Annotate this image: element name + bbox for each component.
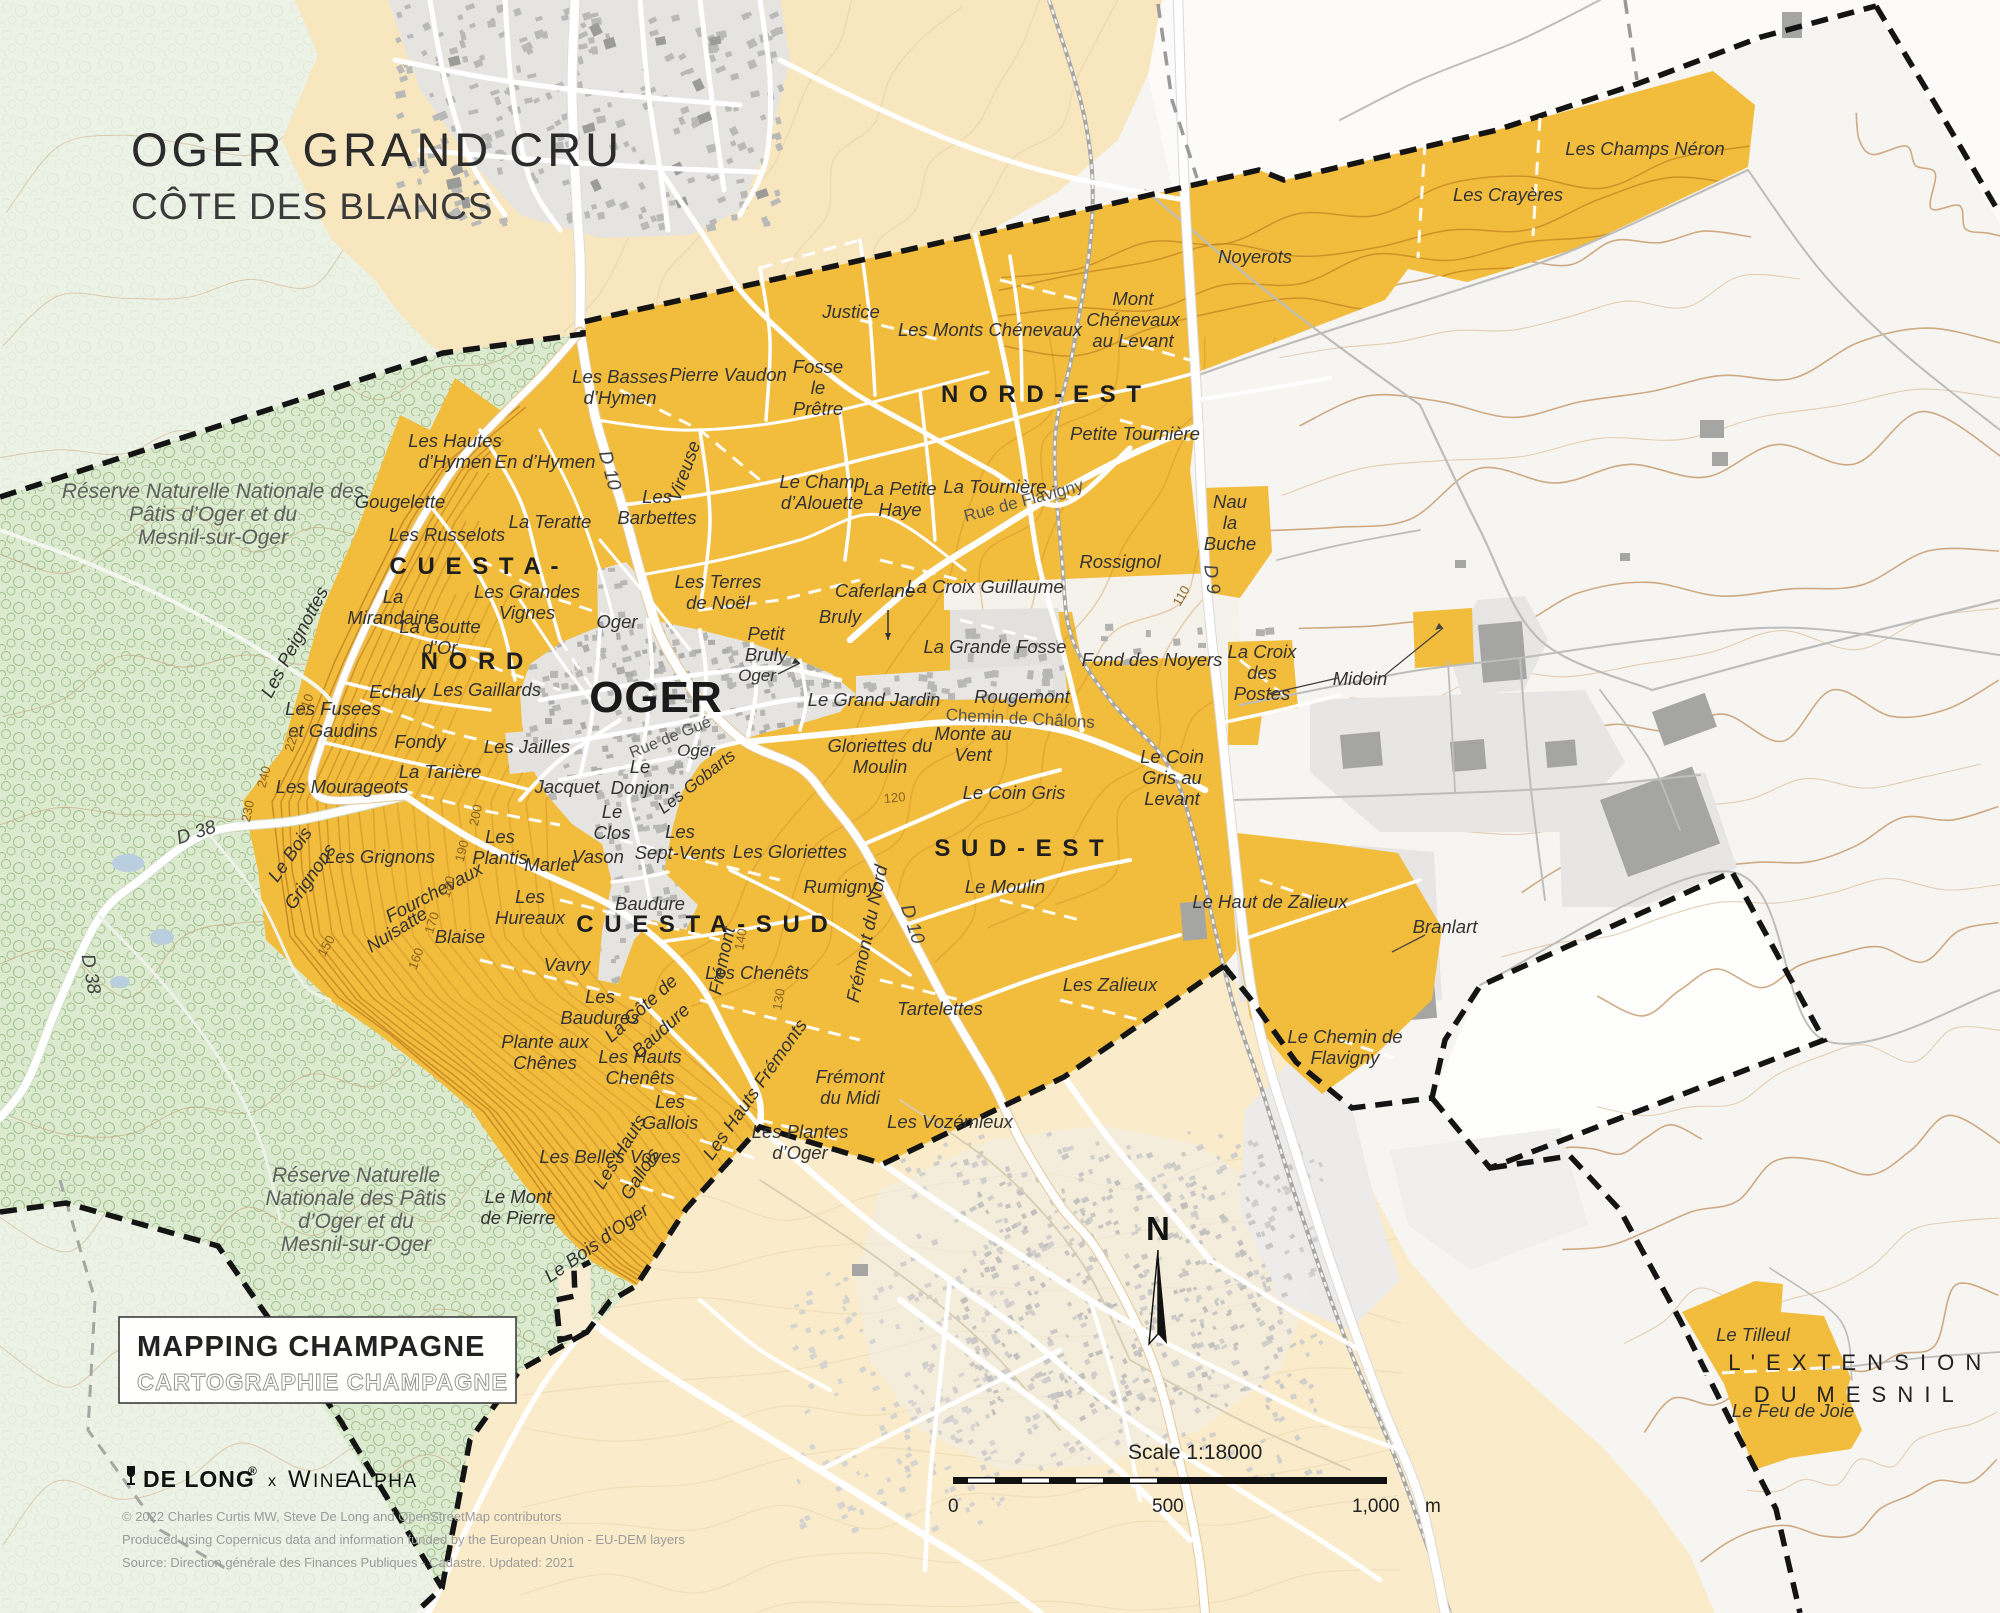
svg-text:Scale 1:18000: Scale 1:18000: [1128, 1441, 1262, 1464]
svg-text:Caferlane: Caferlane: [835, 580, 915, 601]
svg-text:Source: Direction générale des: Source: Direction générale des Finances …: [122, 1555, 574, 1570]
svg-text:Les Russelots: Les Russelots: [389, 524, 505, 545]
svg-text:Vent: Vent: [954, 744, 992, 765]
svg-text:Fondy: Fondy: [394, 731, 447, 752]
svg-text:La Tarière: La Tarière: [399, 761, 482, 782]
svg-text:Les Zalieux: Les Zalieux: [1063, 974, 1158, 995]
svg-text:Midoin: Midoin: [1333, 668, 1388, 689]
svg-text:120: 120: [883, 789, 906, 806]
svg-text:de Pierre: de Pierre: [480, 1207, 555, 1228]
svg-text:La Grande Fosse: La Grande Fosse: [924, 636, 1067, 657]
svg-text:Le Coin: Le Coin: [1140, 746, 1204, 767]
svg-text:La Petite: La Petite: [863, 478, 936, 499]
svg-text:Les Jailles: Les Jailles: [484, 736, 570, 757]
svg-text:Chénevaux: Chénevaux: [1086, 309, 1180, 330]
svg-text:N: N: [1146, 1210, 1170, 1247]
svg-text:d’Oger et du: d’Oger et du: [298, 1210, 414, 1233]
svg-text:Réserve Naturelle: Réserve Naturelle: [272, 1164, 440, 1187]
svg-text:C U E S T A -: C U E S T A -: [390, 553, 561, 580]
svg-text:Le: Le: [630, 756, 651, 777]
svg-text:Noyerots: Noyerots: [1218, 246, 1292, 267]
svg-text:et Gaudins: et Gaudins: [288, 720, 377, 741]
svg-text:1,000: 1,000: [1352, 1496, 1400, 1517]
svg-text:L ' E X T E N S I O N: L ' E X T E N S I O N: [1728, 1350, 1984, 1375]
svg-text:Le Grand Jardin: Le Grand Jardin: [808, 689, 941, 710]
svg-text:Produced using Copernicus data: Produced using Copernicus data and infor…: [122, 1532, 685, 1547]
svg-text:Sept-Vents: Sept-Vents: [635, 842, 726, 863]
svg-text:Bruly: Bruly: [819, 606, 863, 627]
svg-text:Marlet: Marlet: [524, 854, 576, 875]
svg-text:Le Moulin: Le Moulin: [965, 876, 1045, 897]
svg-text:Le Haut de Zalieux: Le Haut de Zalieux: [1192, 891, 1348, 912]
svg-text:Les Vozémieux: Les Vozémieux: [887, 1111, 1014, 1132]
svg-text:CARTOGRAPHIE CHAMPAGNE: CARTOGRAPHIE CHAMPAGNE: [137, 1369, 508, 1395]
svg-text:La: La: [383, 586, 404, 607]
svg-text:Plante aux: Plante aux: [501, 1031, 589, 1052]
svg-text:Gloriettes du: Gloriettes du: [828, 735, 933, 756]
svg-text:des: des: [1247, 662, 1277, 683]
svg-text:Rossignol: Rossignol: [1079, 551, 1161, 572]
svg-text:Mesnil-sur-Oger: Mesnil-sur-Oger: [138, 526, 289, 549]
svg-text:Monte au: Monte au: [934, 723, 1011, 744]
svg-text:Les Terres: Les Terres: [675, 571, 762, 592]
svg-text:Le: Le: [602, 801, 623, 822]
svg-text:Moulin: Moulin: [853, 756, 908, 777]
svg-text:N O R D - E S T: N O R D - E S T: [941, 381, 1143, 408]
svg-text:Postes: Postes: [1234, 683, 1291, 704]
svg-text:du Midi: du Midi: [820, 1087, 881, 1108]
svg-text:Petite Tournière: Petite Tournière: [1070, 423, 1200, 444]
svg-text:W: W: [288, 1466, 312, 1493]
svg-text:le: le: [811, 377, 825, 398]
svg-text:Bruly: Bruly: [745, 644, 789, 665]
svg-text:®: ®: [248, 1464, 257, 1478]
svg-text:C U E S T A - S U D: C U E S T A - S U D: [576, 911, 830, 938]
svg-text:Haye: Haye: [878, 499, 921, 520]
svg-text:Mont: Mont: [1112, 288, 1154, 309]
svg-text:OGER GRAND CRU: OGER GRAND CRU: [131, 123, 623, 176]
svg-text:Les Gaillards: Les Gaillards: [433, 679, 541, 700]
svg-text:Les Grignons: Les Grignons: [325, 846, 435, 867]
svg-text:S U D - E S T: S U D - E S T: [934, 835, 1105, 862]
svg-text:Tartelettes: Tartelettes: [897, 998, 983, 1019]
svg-text:d’Hymen: d’Hymen: [419, 451, 492, 472]
svg-text:Les Gloriettes: Les Gloriettes: [733, 841, 847, 862]
svg-text:Vignes: Vignes: [499, 602, 555, 623]
svg-text:Chenêts: Chenêts: [606, 1067, 675, 1088]
svg-text:Les: Les: [665, 821, 695, 842]
svg-text:Mesnil-sur-Oger: Mesnil-sur-Oger: [281, 1233, 432, 1256]
svg-text:Branlart: Branlart: [1413, 916, 1479, 937]
svg-text:d’Or: d’Or: [423, 637, 459, 658]
svg-text:Vason: Vason: [572, 846, 624, 867]
svg-text:Les Monts Chénevaux: Les Monts Chénevaux: [898, 319, 1083, 340]
svg-text:La Croix Guillaume: La Croix Guillaume: [906, 576, 1063, 597]
svg-text:Donjon: Donjon: [611, 777, 670, 798]
svg-text:Les Crayères: Les Crayères: [1453, 184, 1563, 205]
svg-text:d’Alouette: d’Alouette: [781, 492, 863, 513]
svg-text:La Teratte: La Teratte: [509, 511, 592, 532]
svg-text:Le Chemin de: Le Chemin de: [1287, 1026, 1402, 1047]
svg-text:0: 0: [948, 1496, 959, 1517]
svg-text:INE: INE: [313, 1471, 349, 1492]
svg-text:Gougelette: Gougelette: [355, 491, 446, 512]
svg-text:Gallois: Gallois: [642, 1112, 699, 1133]
svg-text:La Goutte: La Goutte: [399, 616, 480, 637]
svg-text:Les Plantes: Les Plantes: [752, 1121, 849, 1142]
svg-text:Petit: Petit: [747, 623, 785, 644]
svg-text:Les Mourageots: Les Mourageots: [276, 776, 409, 797]
svg-text:Vavry: Vavry: [544, 954, 592, 975]
svg-text:© 2022 Charles Curtis MW, Stev: © 2022 Charles Curtis MW, Steve De Long …: [122, 1509, 562, 1524]
svg-text:Flavigny: Flavigny: [1311, 1047, 1382, 1068]
svg-text:Les: Les: [585, 986, 615, 1007]
svg-text:Levant: Levant: [1144, 788, 1200, 809]
svg-text:Le Coin Gris: Le Coin Gris: [963, 782, 1066, 803]
svg-text:Clos: Clos: [593, 822, 630, 843]
svg-text:m: m: [1425, 1496, 1441, 1517]
svg-text:Les Grandes: Les Grandes: [474, 581, 580, 602]
svg-text:Les Basses: Les Basses: [572, 366, 668, 387]
svg-text:A: A: [345, 1466, 361, 1493]
svg-text:Chênes: Chênes: [513, 1052, 577, 1073]
svg-text:DE LONG: DE LONG: [143, 1466, 255, 1492]
svg-text:au Levant: au Levant: [1092, 330, 1174, 351]
svg-text:Le Mont: Le Mont: [485, 1186, 553, 1207]
svg-text:Blaise: Blaise: [435, 926, 485, 947]
svg-text:Prêtre: Prêtre: [793, 398, 843, 419]
svg-text:Les: Les: [515, 886, 545, 907]
svg-text:CÔTE DES BLANCS: CÔTE DES BLANCS: [131, 186, 493, 227]
svg-text:Pierre Vaudon: Pierre Vaudon: [669, 364, 787, 385]
svg-text:En d’Hymen: En d’Hymen: [495, 451, 596, 472]
svg-text:MAPPING CHAMPAGNE: MAPPING CHAMPAGNE: [137, 1331, 485, 1363]
svg-text:la: la: [1223, 512, 1237, 533]
svg-text:Les: Les: [655, 1091, 685, 1112]
svg-text:Fosse: Fosse: [793, 356, 843, 377]
svg-text:x: x: [268, 1473, 276, 1490]
svg-text:La Croix: La Croix: [1228, 641, 1298, 662]
svg-text:Le Champ: Le Champ: [779, 471, 864, 492]
svg-text:Oger: Oger: [596, 611, 638, 632]
svg-text:Hureaux: Hureaux: [495, 907, 566, 928]
svg-text:Frémont: Frémont: [816, 1066, 886, 1087]
svg-text:Pâtis d’Oger et du: Pâtis d’Oger et du: [129, 503, 297, 526]
svg-text:Justice: Justice: [821, 301, 880, 322]
svg-text:Nationale des Pâtis: Nationale des Pâtis: [266, 1187, 447, 1210]
svg-text:Nau: Nau: [1213, 491, 1247, 512]
svg-text:Plantis: Plantis: [472, 847, 528, 868]
svg-text:Oger: Oger: [677, 741, 716, 760]
svg-text:d’Hymen: d’Hymen: [584, 387, 657, 408]
svg-text:d’Oger: d’Oger: [772, 1142, 828, 1163]
svg-text:Oger: Oger: [738, 666, 777, 685]
svg-text:Le Feu de Joie: Le Feu de Joie: [1732, 1400, 1854, 1421]
svg-text:LPHA: LPHA: [362, 1471, 418, 1492]
svg-text:de Noël: de Noël: [686, 592, 751, 613]
svg-text:Baudure: Baudure: [615, 893, 685, 914]
svg-text:Barbettes: Barbettes: [617, 507, 696, 528]
svg-text:Buche: Buche: [1204, 533, 1256, 554]
svg-text:D 9: D 9: [1199, 563, 1223, 595]
svg-text:Le Tilleul: Le Tilleul: [1716, 1324, 1791, 1345]
svg-text:Rougemont: Rougemont: [974, 686, 1071, 707]
svg-text:Les Hautes: Les Hautes: [408, 430, 502, 451]
svg-text:Les Champs Néron: Les Champs Néron: [1565, 138, 1724, 159]
svg-text:La Tournière: La Tournière: [943, 476, 1046, 497]
svg-text:Réserve Naturelle Nationale de: Réserve Naturelle Nationale des: [62, 480, 365, 503]
svg-text:Fond des Noyers: Fond des Noyers: [1082, 649, 1223, 670]
svg-text:Jacquet: Jacquet: [534, 776, 601, 797]
svg-text:Les: Les: [485, 826, 515, 847]
svg-text:500: 500: [1152, 1496, 1184, 1517]
svg-text:Gris au: Gris au: [1142, 767, 1202, 788]
